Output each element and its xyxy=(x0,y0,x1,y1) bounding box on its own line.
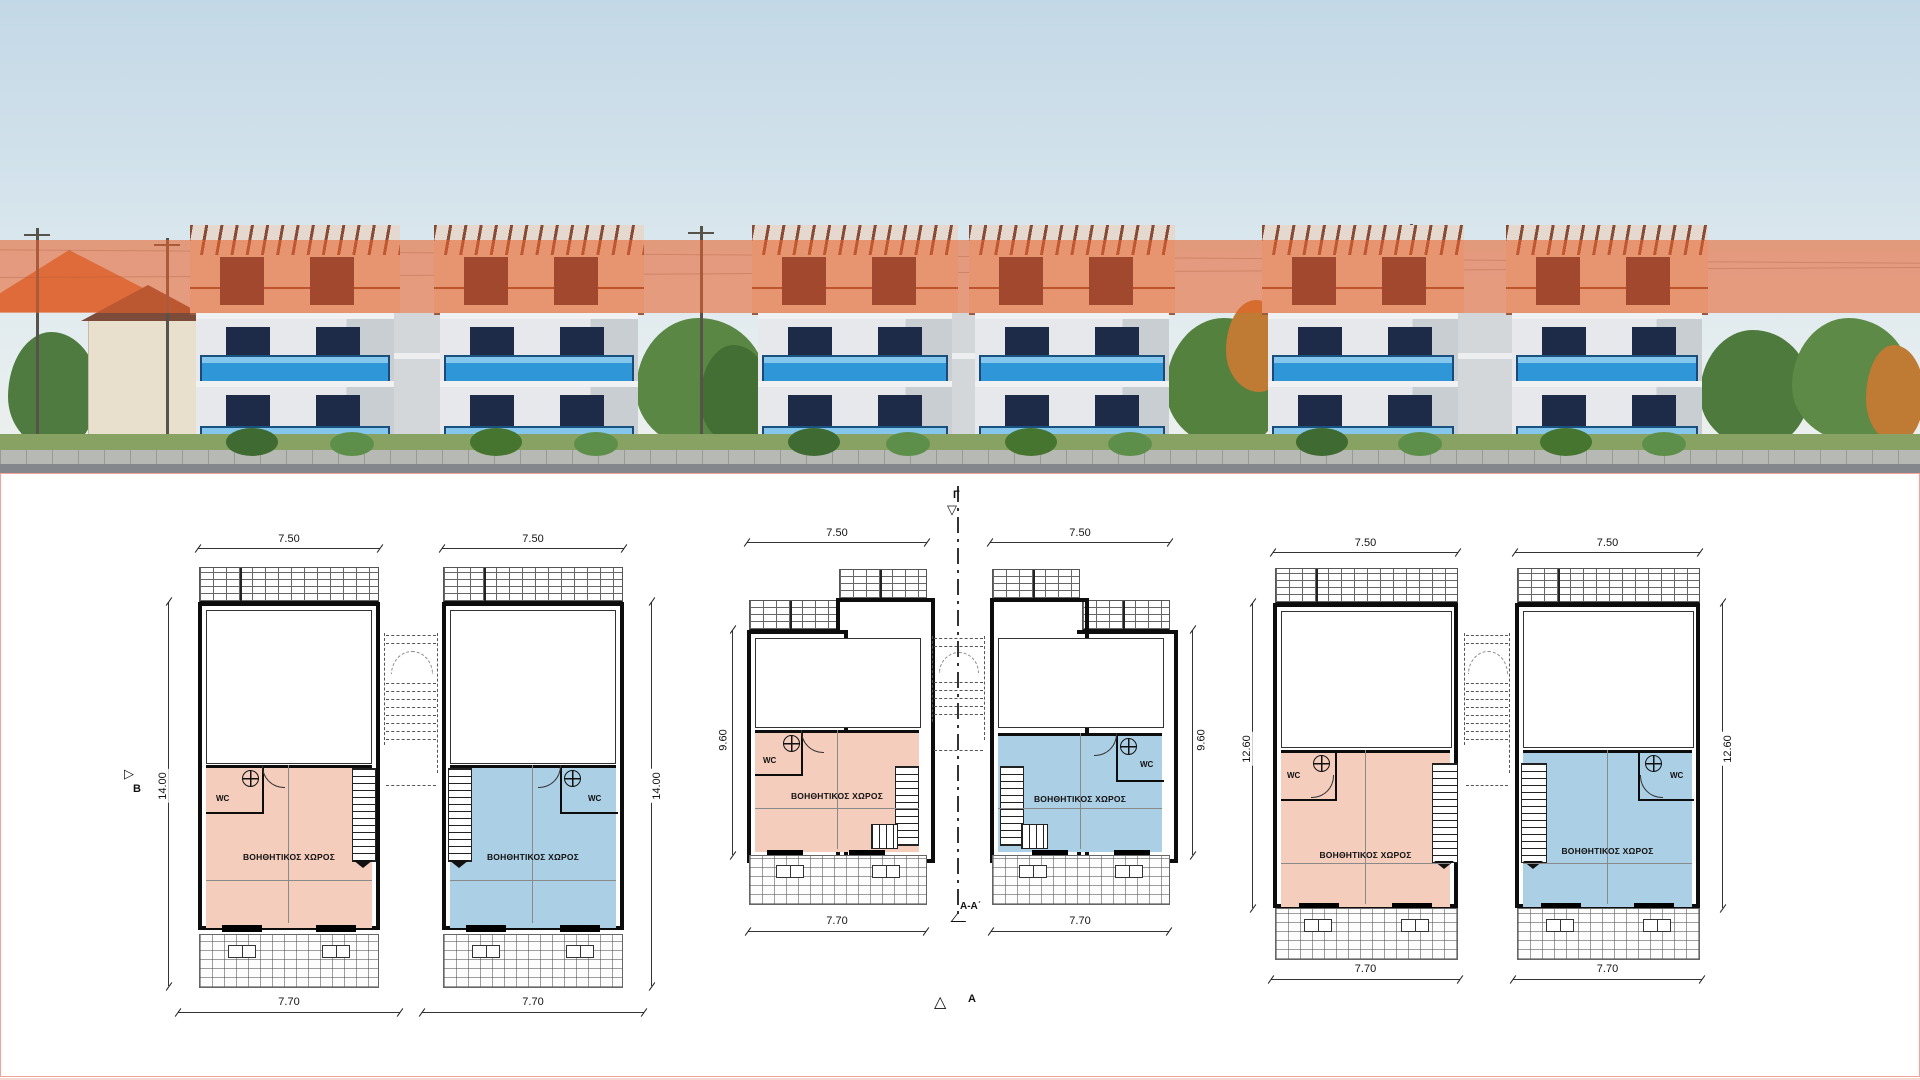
bridge-dash xyxy=(386,731,436,732)
upper-room xyxy=(1523,611,1694,748)
dimension-label: 7.50 xyxy=(1594,537,1621,549)
section-marker-a-icon: △ xyxy=(934,995,946,1011)
bridge-dash xyxy=(1466,723,1508,724)
tree xyxy=(1866,345,1920,443)
bridge-dash xyxy=(386,715,436,716)
bridge-dash xyxy=(932,636,933,722)
wc-label: WC xyxy=(1140,760,1153,769)
terrace-dim-box xyxy=(228,945,256,958)
floor-plan-unit-2: WC ΒΟΗΘΗΤΙΚΟΣ ΧΩΡΟΣ 7.50 7.70 14.00 xyxy=(442,602,624,930)
terrace-dim-box xyxy=(1115,865,1143,878)
room-dimension-line xyxy=(998,808,1162,809)
tree xyxy=(8,332,98,450)
terrace-dim-box xyxy=(1304,919,1332,932)
dimension-label: 7.50 xyxy=(275,533,302,545)
bridge-dash xyxy=(1466,699,1508,700)
drawing-sheet: WC ΒΟΗΘΗΤΙΚΟΣ ΧΩΡΟΣ 7.50 7.70 14.00 xyxy=(0,0,1920,1080)
room-dimension-line xyxy=(1281,863,1450,864)
room-centerline xyxy=(1080,733,1081,849)
bridge-dash xyxy=(386,739,436,740)
floor-plan-unit-5: WC ΒΟΗΘΗΤΙΚΟΣ ΧΩΡΟΣ 7.50 7.70 12.60 xyxy=(1273,603,1458,908)
room-centerline xyxy=(1365,750,1366,904)
terrace-dim-box xyxy=(1019,865,1047,878)
upper-floor xyxy=(1268,313,1458,387)
shrub xyxy=(574,432,618,456)
dimension-line xyxy=(178,1012,400,1013)
dimension-line xyxy=(198,548,380,549)
dimension-line xyxy=(990,542,1170,543)
upper-room xyxy=(450,610,616,764)
floor-plan-unit-4: WC ΒΟΗΘΗΤΙΚΟΣ ΧΩΡΟΣ 7.50 7.70 9.60 xyxy=(990,598,1170,855)
bridge-dash xyxy=(386,707,436,708)
bridge-dash xyxy=(1466,635,1508,636)
stair-connector xyxy=(394,313,440,452)
wc-label: WC xyxy=(763,756,776,765)
room-label: ΒΟΗΘΗΤΙΚΟΣ ΧΩΡΟΣ xyxy=(990,794,1170,804)
terrace-paving xyxy=(1275,908,1458,960)
pergola-trellis xyxy=(1275,568,1458,606)
window-opening xyxy=(560,925,600,932)
pergola-trellis xyxy=(443,567,623,605)
room-dimension-line xyxy=(450,880,616,881)
pergola-trellis xyxy=(1082,600,1170,633)
dimension-label: 7.70 xyxy=(519,996,546,1008)
section-label-aa: Α-Α΄ xyxy=(960,901,981,912)
section-marker-b-icon: ▷ xyxy=(124,767,134,780)
terrace-dim-box xyxy=(1546,919,1574,932)
shrub xyxy=(330,432,374,456)
terrace-paving xyxy=(749,855,927,905)
floor-plan-unit-3: WC ΒΟΗΘΗΤΙΚΟΣ ΧΩΡΟΣ 7.50 7.70 9.60 xyxy=(747,598,927,855)
bridge-dash xyxy=(386,723,436,724)
washbasin-icon xyxy=(1645,755,1662,772)
bridge-dash xyxy=(386,643,436,644)
section-arrow xyxy=(950,913,972,922)
window-opening xyxy=(222,925,262,932)
shrub xyxy=(1398,432,1442,456)
dimension-label: 7.70 xyxy=(823,915,850,927)
terrace-dim-box xyxy=(1643,919,1671,932)
pergola-trellis xyxy=(199,567,379,605)
stair-connector xyxy=(952,313,975,452)
stair-bridge xyxy=(1462,633,1512,793)
shrub xyxy=(470,428,522,456)
washbasin-icon xyxy=(1313,755,1330,772)
staircase-flight xyxy=(1021,824,1048,849)
bridge-dash xyxy=(384,633,385,745)
bridge-dash xyxy=(1466,715,1508,716)
dimension-line xyxy=(1515,552,1700,553)
dimension-line xyxy=(991,931,1169,932)
washbasin-icon xyxy=(783,735,800,752)
shrub xyxy=(1642,432,1686,456)
room-label: ΒΟΗΘΗΤΙΚΟΣ ΧΩΡΟΣ xyxy=(1515,846,1700,856)
staircase xyxy=(352,768,376,862)
bridge-dash xyxy=(1466,731,1508,732)
wc-label: WC xyxy=(1670,771,1683,780)
upper-floor xyxy=(196,313,394,387)
terrace-dim-box xyxy=(776,865,804,878)
dimension-line xyxy=(747,542,927,543)
road xyxy=(0,464,1920,473)
dimension-label: 7.50 xyxy=(1066,527,1093,539)
wc-label: WC xyxy=(1287,771,1300,780)
washbasin-icon xyxy=(1120,738,1137,755)
floor-plan-unit-6: WC ΒΟΗΘΗΤΙΚΟΣ ΧΩΡΟΣ 7.50 7.70 12.60 xyxy=(1515,603,1700,908)
terrace-dim-box xyxy=(566,945,594,958)
sidewalk xyxy=(0,450,1920,465)
floor-plan-unit-1: WC ΒΟΗΘΗΤΙΚΟΣ ΧΩΡΟΣ 7.50 7.70 14.00 xyxy=(198,602,380,930)
dimension-line xyxy=(732,630,733,855)
dimension-label: 9.60 xyxy=(1195,726,1207,753)
staircase xyxy=(895,766,919,846)
wc-label: WC xyxy=(588,794,601,803)
dimension-line xyxy=(1271,979,1460,980)
dimension-label: 7.50 xyxy=(519,533,546,545)
section-marker-gamma: Γ xyxy=(953,489,960,501)
dimension-label: 7.50 xyxy=(1352,537,1379,549)
dimension-label: 7.70 xyxy=(1066,915,1093,927)
terrace-dim-box xyxy=(872,865,900,878)
bridge-dash xyxy=(1509,633,1510,773)
bridge-dash xyxy=(386,699,436,700)
room-dimension-line xyxy=(755,808,919,809)
bridge-arc xyxy=(391,651,433,674)
dimension-line xyxy=(442,548,624,549)
room-centerline xyxy=(1607,750,1608,904)
dimension-label: 7.70 xyxy=(1352,963,1379,975)
dimension-label: 14.00 xyxy=(157,769,169,803)
dimension-label: 7.50 xyxy=(823,527,850,539)
staircase-flight xyxy=(871,824,898,849)
stair-connector xyxy=(1458,313,1512,452)
upper-room xyxy=(206,610,372,764)
upper-room xyxy=(998,638,1164,728)
bridge-dash xyxy=(437,633,438,773)
room-label: ΒΟΗΘΗΤΙΚΟΣ ΧΩΡΟΣ xyxy=(442,852,624,862)
terrace-dim-box xyxy=(322,945,350,958)
bridge-dash xyxy=(1464,633,1465,745)
room-dimension-line xyxy=(1523,863,1692,864)
bridge-dash xyxy=(1466,785,1508,786)
window-opening xyxy=(316,925,356,932)
dimension-line xyxy=(422,1012,644,1013)
terrace-paving xyxy=(443,934,623,988)
dimension-label: 14.00 xyxy=(651,769,663,803)
upper-floor xyxy=(440,313,638,387)
pole-crossarm xyxy=(688,232,714,234)
bridge-dash xyxy=(1466,707,1508,708)
washbasin-icon xyxy=(242,770,259,787)
room-centerline xyxy=(837,730,838,849)
shrub xyxy=(226,428,278,456)
terrace-paving xyxy=(992,855,1170,905)
bridge-dash xyxy=(386,683,436,684)
dimension-line xyxy=(1192,630,1193,855)
pergola-trellis xyxy=(1517,568,1700,606)
section-line-aa xyxy=(957,486,959,918)
room-label: ΒΟΗΘΗΤΙΚΟΣ ΧΩΡΟΣ xyxy=(747,791,927,801)
shrub xyxy=(886,432,930,456)
bridge-dash xyxy=(1466,691,1508,692)
floor-plans-panel: WC ΒΟΗΘΗΤΙΚΟΣ ΧΩΡΟΣ 7.50 7.70 14.00 xyxy=(0,473,1920,1077)
section-marker-gamma-icon: ▽ xyxy=(947,503,957,516)
shrub xyxy=(1296,428,1348,456)
dimension-label: 7.70 xyxy=(275,996,302,1008)
room-centerline xyxy=(288,765,289,923)
pole-crossarm xyxy=(24,234,50,236)
bridge-dash xyxy=(984,636,985,740)
bridge-dash xyxy=(386,691,436,692)
dimension-line xyxy=(1273,552,1458,553)
room-label: ΒΟΗΘΗΤΙΚΟΣ ΧΩΡΟΣ xyxy=(198,852,380,862)
shrub xyxy=(1005,428,1057,456)
room-centerline xyxy=(532,765,533,923)
upper-room xyxy=(755,638,921,728)
dimension-line xyxy=(748,931,926,932)
upper-floor xyxy=(1512,313,1702,387)
elevation-rendering xyxy=(0,0,1920,473)
dimension-label: 12.60 xyxy=(1241,732,1253,766)
section-marker-b: Β xyxy=(133,783,141,795)
bridge-dash xyxy=(1466,643,1508,644)
shrub xyxy=(1108,432,1152,456)
room-dimension-line xyxy=(206,880,372,881)
bridge-arc xyxy=(1468,651,1508,674)
room-label: ΒΟΗΘΗΤΙΚΟΣ ΧΩΡΟΣ xyxy=(1273,850,1458,860)
staircase xyxy=(1432,763,1458,863)
shrub xyxy=(1540,428,1592,456)
pergola-trellis xyxy=(749,600,837,633)
attic-highlight-overlay xyxy=(0,240,1920,313)
upper-floor xyxy=(758,313,952,387)
washbasin-icon xyxy=(564,770,581,787)
dimension-line xyxy=(1513,979,1702,980)
stair-bridge xyxy=(382,633,440,793)
bridge-arc xyxy=(939,652,979,673)
terrace-dim-box xyxy=(472,945,500,958)
section-marker-a: Α xyxy=(968,993,976,1005)
terrace-dim-box xyxy=(1401,919,1429,932)
staircase xyxy=(448,768,472,862)
dimension-label: 9.60 xyxy=(718,726,730,753)
wc-label: WC xyxy=(216,794,229,803)
dimension-label: 12.60 xyxy=(1722,732,1734,766)
window-opening xyxy=(466,925,506,932)
dimension-label: 7.70 xyxy=(1594,963,1621,975)
bridge-dash xyxy=(1466,683,1508,684)
upper-room xyxy=(1281,611,1452,748)
terrace-paving xyxy=(199,934,379,988)
upper-floor xyxy=(975,313,1169,387)
bridge-dash xyxy=(386,785,436,786)
terrace-paving xyxy=(1517,908,1700,960)
background-house xyxy=(88,318,208,436)
bridge-dash xyxy=(1466,739,1508,740)
shrub xyxy=(788,428,840,456)
bridge-dash xyxy=(386,635,436,636)
